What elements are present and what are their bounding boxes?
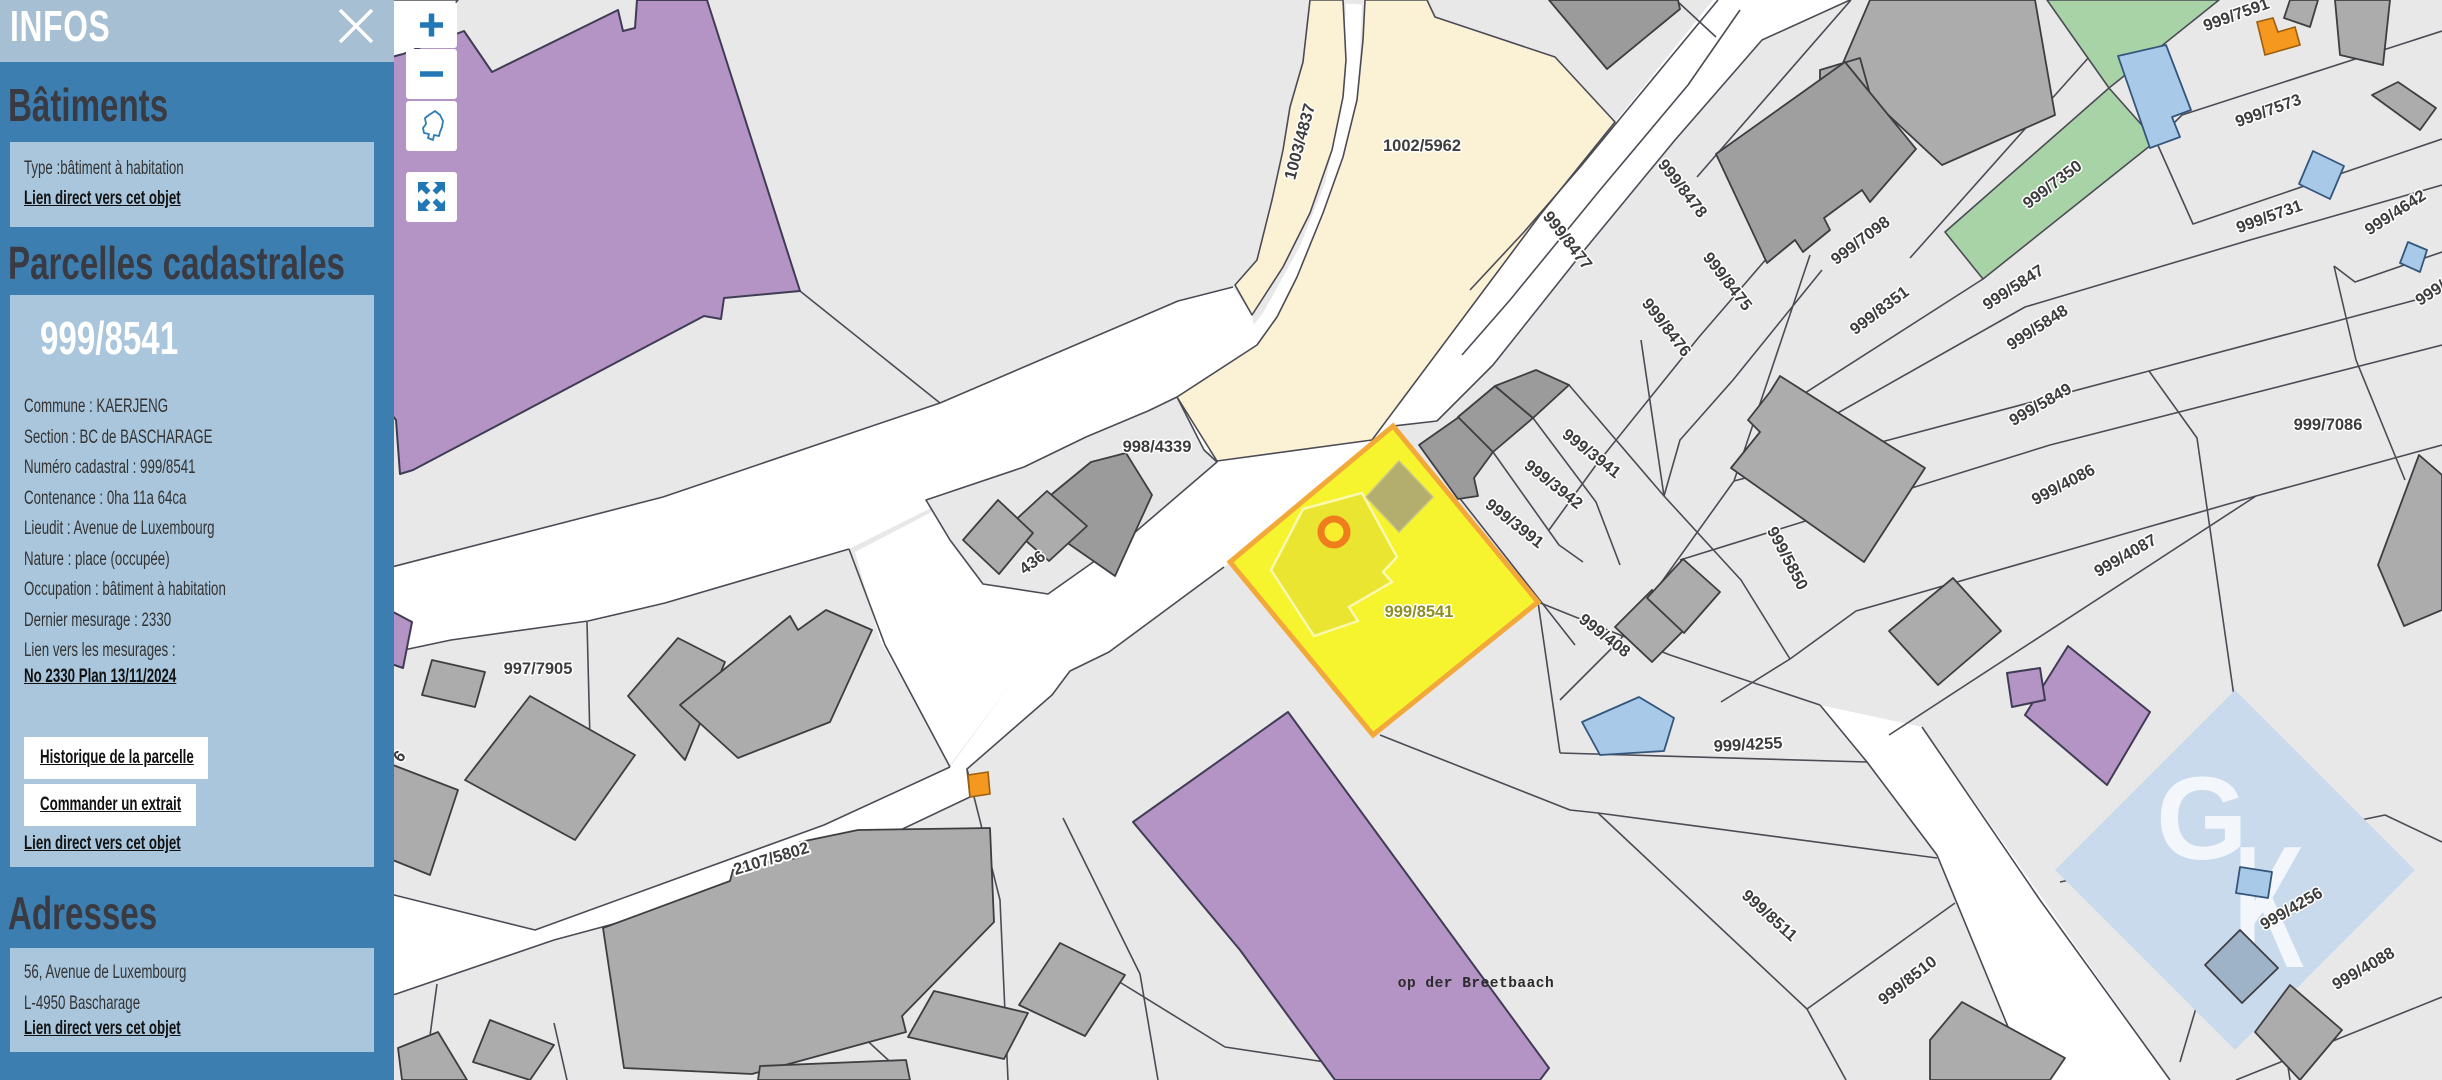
svg-text:1002/5962: 1002/5962 <box>1383 137 1461 155</box>
svg-text:999/4255: 999/4255 <box>1713 734 1783 756</box>
svg-text:997/7905: 997/7905 <box>504 660 573 678</box>
svg-text:999/8541: 999/8541 <box>1385 603 1454 621</box>
svg-text:998/4339: 998/4339 <box>1123 438 1192 456</box>
svg-text:op der Breetbaach: op der Breetbaach <box>1398 976 1554 992</box>
svg-text:999/7086: 999/7086 <box>2294 416 2363 434</box>
